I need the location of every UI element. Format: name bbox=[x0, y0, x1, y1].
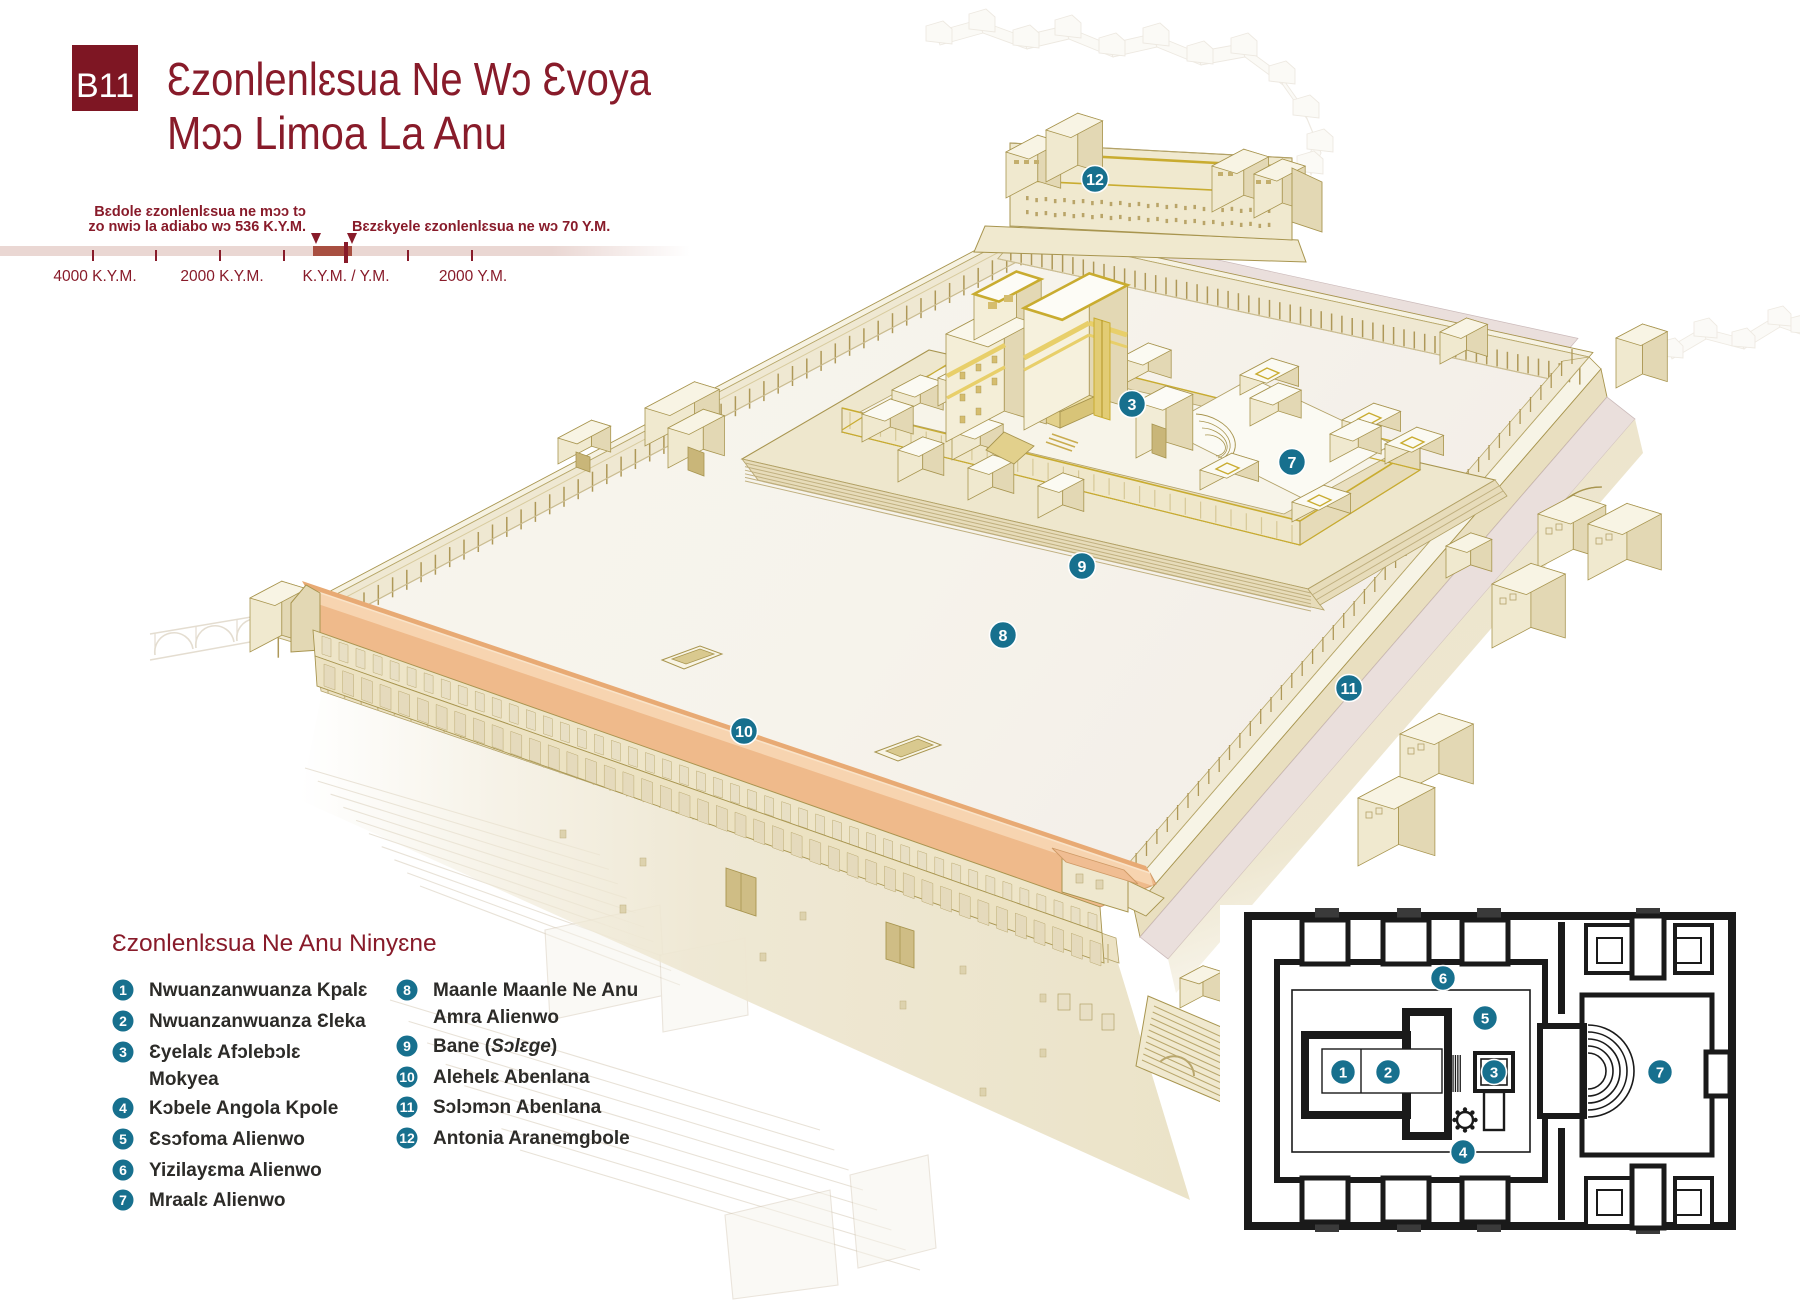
svg-text:B11: B11 bbox=[76, 67, 134, 105]
svg-text:12: 12 bbox=[1086, 172, 1104, 189]
svg-text:3: 3 bbox=[119, 1044, 127, 1060]
svg-text:8: 8 bbox=[403, 982, 411, 998]
svg-text:3: 3 bbox=[1128, 397, 1137, 414]
svg-text:4: 4 bbox=[119, 1100, 127, 1116]
svg-text:6: 6 bbox=[1439, 970, 1447, 987]
svg-text:4: 4 bbox=[1459, 1144, 1468, 1161]
svg-text:zo nwiɔ la adiabo wɔ 536 K.Y.M: zo nwiɔ la adiabo wɔ 536 K.Y.M. bbox=[88, 219, 306, 235]
svg-text:5: 5 bbox=[119, 1131, 127, 1147]
svg-text:1: 1 bbox=[119, 982, 127, 998]
svg-text:Bɛdole ɛzonlenlɛsua ne mɔɔ tɔ: Bɛdole ɛzonlenlɛsua ne mɔɔ tɔ bbox=[94, 204, 306, 220]
svg-text:11: 11 bbox=[400, 1099, 415, 1115]
svg-text:5: 5 bbox=[1481, 1010, 1489, 1027]
svg-text:Ɛzonlenlɛsua Ne Anu Ninyɛne: Ɛzonlenlɛsua Ne Anu Ninyɛne bbox=[112, 930, 437, 957]
svg-text:9: 9 bbox=[403, 1038, 411, 1054]
svg-text:3: 3 bbox=[1490, 1064, 1498, 1081]
svg-text:12: 12 bbox=[399, 1130, 415, 1146]
svg-text:Nwuanzanwuanza Ɛleka: Nwuanzanwuanza Ɛleka bbox=[149, 1011, 366, 1032]
svg-text:Amra Alienwo: Amra Alienwo bbox=[433, 1007, 559, 1028]
svg-text:Kɔbele Angola Kpole: Kɔbele Angola Kpole bbox=[149, 1098, 338, 1119]
svg-text:Nwuanzanwuanza Kpalɛ: Nwuanzanwuanza Kpalɛ bbox=[149, 980, 367, 1001]
svg-text:Mokyea: Mokyea bbox=[149, 1069, 219, 1090]
svg-text:10: 10 bbox=[399, 1069, 415, 1085]
svg-text:Maanle Maanle Ne Anu: Maanle Maanle Ne Anu bbox=[433, 980, 638, 1001]
svg-text:Mraalɛ Alienwo: Mraalɛ Alienwo bbox=[149, 1190, 286, 1211]
svg-text:Ɛzonlenlɛsua Ne Wɔ Ɛvoya: Ɛzonlenlɛsua Ne Wɔ Ɛvoya bbox=[167, 53, 651, 105]
svg-text:2000 Y.M.: 2000 Y.M. bbox=[439, 268, 507, 285]
svg-text:2: 2 bbox=[1384, 1064, 1392, 1081]
svg-text:8: 8 bbox=[999, 628, 1008, 645]
svg-text:4000 K.Y.M.: 4000 K.Y.M. bbox=[53, 268, 136, 285]
svg-text:7: 7 bbox=[1288, 455, 1297, 472]
svg-text:Bane (Sɔlɛge): Bane (Sɔlɛge) bbox=[433, 1036, 557, 1057]
svg-text:Mɔɔ Limoa La Anu: Mɔɔ Limoa La Anu bbox=[167, 107, 507, 159]
svg-text:9: 9 bbox=[1078, 559, 1087, 576]
svg-text:7: 7 bbox=[1656, 1064, 1664, 1081]
svg-text:Yizilayɛma Alienwo: Yizilayɛma Alienwo bbox=[149, 1160, 322, 1181]
svg-text:Ɛyelalɛ Afɔlebɔlɛ: Ɛyelalɛ Afɔlebɔlɛ bbox=[149, 1042, 301, 1063]
svg-text:7: 7 bbox=[119, 1192, 127, 1208]
svg-text:1: 1 bbox=[1339, 1064, 1347, 1081]
svg-text:11: 11 bbox=[1341, 681, 1358, 698]
svg-text:6: 6 bbox=[119, 1162, 127, 1178]
svg-text:2000 K.Y.M.: 2000 K.Y.M. bbox=[180, 268, 263, 285]
svg-text:Bɛzɛkyele ɛzonlenlɛsua ne wɔ 7: Bɛzɛkyele ɛzonlenlɛsua ne wɔ 70 Y.M. bbox=[352, 219, 610, 235]
svg-text:2: 2 bbox=[119, 1013, 127, 1029]
svg-text:Ɛsɔfoma Alienwo: Ɛsɔfoma Alienwo bbox=[149, 1129, 305, 1150]
svg-text:K.Y.M. / Y.M.: K.Y.M. / Y.M. bbox=[302, 268, 389, 285]
svg-text:Antonia Aranemgbole: Antonia Aranemgbole bbox=[433, 1128, 630, 1149]
svg-text:Sɔlɔmɔn Abenlana: Sɔlɔmɔn Abenlana bbox=[433, 1097, 602, 1118]
svg-text:10: 10 bbox=[735, 724, 753, 741]
svg-text:Alehelɛ Abenlana: Alehelɛ Abenlana bbox=[433, 1067, 590, 1088]
